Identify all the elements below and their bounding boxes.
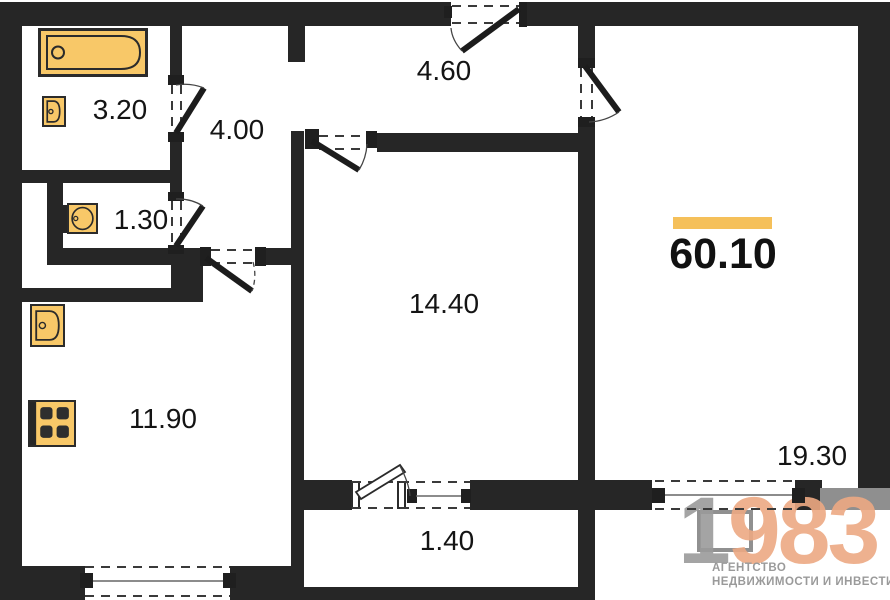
bathroom-bottom-wall <box>22 170 182 183</box>
entrance-door-post-left <box>444 6 452 18</box>
bath-sink-icon <box>42 96 66 127</box>
total-area-label: 60.10 <box>648 233 798 281</box>
living-door-leaf <box>312 141 359 170</box>
toilet-area-label: 1.30 <box>91 206 191 234</box>
entrance-door-leaf <box>462 9 519 51</box>
total-area-accent-bar <box>673 217 772 229</box>
balcony-door-frame-left <box>351 481 360 509</box>
bedroom-area-label: 19.30 <box>752 442 872 470</box>
corridor-bedroom-wall-upper <box>578 24 595 59</box>
entrance-door-arc <box>451 28 462 51</box>
corridor-area-label: 4.60 <box>394 57 494 85</box>
living-door-post-left <box>305 129 319 149</box>
bathroom-right-wall-upper <box>170 24 182 76</box>
bedroom-door-leaf <box>585 66 619 112</box>
balcony-window-post-left <box>407 489 417 503</box>
stove-icon <box>28 400 76 447</box>
entrance-door-post-right <box>519 2 527 27</box>
bedroom-door-post-top <box>578 58 595 68</box>
toilet-door-post-top <box>168 192 184 201</box>
kitchen-door-arc <box>252 262 255 291</box>
top-wall-right <box>519 2 890 26</box>
living-balcony-wall-left <box>304 480 352 510</box>
corridor-bedroom-wall-lower <box>578 126 595 600</box>
bedroom-door-post-bottom <box>578 117 595 127</box>
balcony-bottom-wall <box>302 587 592 600</box>
living-area-label: 14.40 <box>384 290 504 318</box>
living-balcony-wall-right <box>470 480 580 510</box>
kitchen-living-wall <box>291 131 304 600</box>
agency-tagline-line2: НЕДВИЖИМОСТИ И ИНВЕСТИЦИЙ <box>712 577 890 589</box>
balcony-window-post-right <box>461 489 471 503</box>
toilet-cistern-icon <box>55 205 67 233</box>
left-outer-wall <box>0 2 22 600</box>
kitchen-bottom-wall-left <box>22 566 85 600</box>
agency-tagline-line1: АГЕНТСТВО <box>712 563 786 575</box>
kitchen-door-post-right <box>255 247 266 266</box>
kitchen-sink-icon <box>30 304 65 347</box>
bathtub-icon <box>38 28 148 77</box>
kitchen-door-post-left <box>200 247 211 266</box>
bathroom-door-post-top <box>168 75 184 85</box>
floor-plan: 3.20 4.00 1.30 11.90 14.40 4.60 19.30 1.… <box>0 0 890 600</box>
kitchen-door-leaf <box>206 258 252 291</box>
kitchen-top-wall <box>22 288 182 302</box>
right-outer-wall <box>858 2 890 488</box>
toilet-door-post-bottom <box>168 245 184 254</box>
bedroom-window-post-left <box>652 488 665 503</box>
top-wall-left <box>0 2 451 26</box>
hall-corridor-stub-wall <box>288 24 305 62</box>
balcony-door-frame-right <box>397 481 406 509</box>
kitchen-window-post-right <box>223 573 236 588</box>
bedroom-window-post-right <box>792 488 805 503</box>
kitchen-window-post-left <box>80 573 93 588</box>
living-door-post-right <box>366 131 377 148</box>
bedroom-bottom-wall-left <box>595 480 652 510</box>
hallway-area-label: 4.00 <box>187 116 287 144</box>
kitchen-bottom-wall-right <box>230 566 304 600</box>
balcony-area-label: 1.40 <box>397 527 497 555</box>
bathroom-right-wall-mid <box>170 142 182 192</box>
bathroom-door-post-bottom <box>168 132 184 142</box>
kitchen-area-label: 11.90 <box>103 405 223 433</box>
bathroom-area-label: 3.20 <box>70 96 170 124</box>
living-top-wall <box>377 133 578 152</box>
kitchen-top-connector-wall <box>171 248 203 302</box>
